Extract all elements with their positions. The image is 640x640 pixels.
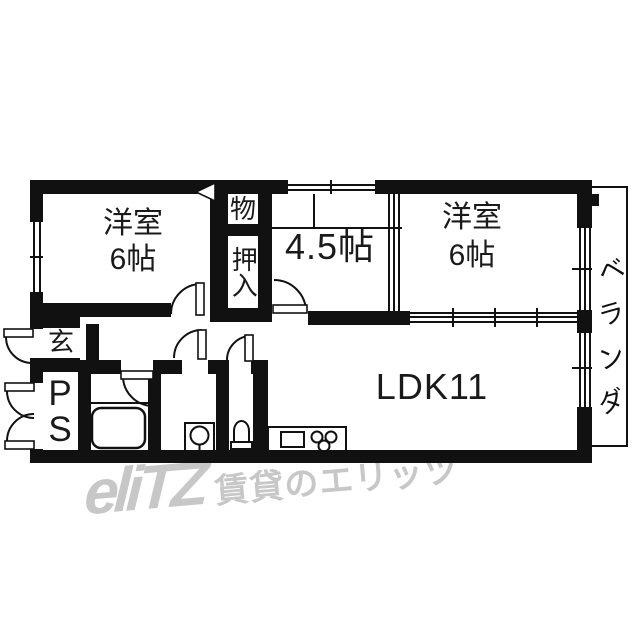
floorplan-image: eliTZ 賃貸のエリッツ bbox=[0, 0, 640, 640]
door-leaf bbox=[198, 330, 206, 359]
kitchen-sink-icon bbox=[281, 432, 304, 447]
door-leaf bbox=[5, 441, 34, 449]
folding-door-marker bbox=[196, 183, 215, 201]
toilet-icon bbox=[234, 421, 249, 442]
door-leaf bbox=[273, 305, 307, 313]
door-leaf bbox=[5, 383, 34, 391]
door-leaf bbox=[4, 329, 33, 337]
gas-stove-burner-icon bbox=[319, 441, 330, 452]
door-arc-entrance bbox=[6, 337, 32, 363]
bathtub-icon bbox=[92, 408, 145, 448]
kitchen-counter bbox=[268, 427, 346, 452]
door-leaf bbox=[245, 335, 253, 361]
toilet-base bbox=[231, 442, 252, 449]
door-leaf bbox=[121, 371, 153, 379]
door-arc-bathroom bbox=[123, 376, 153, 406]
washbasin-bowl-icon bbox=[191, 427, 209, 445]
doors-and-fixtures bbox=[0, 0, 640, 640]
door-leaf bbox=[196, 283, 204, 315]
